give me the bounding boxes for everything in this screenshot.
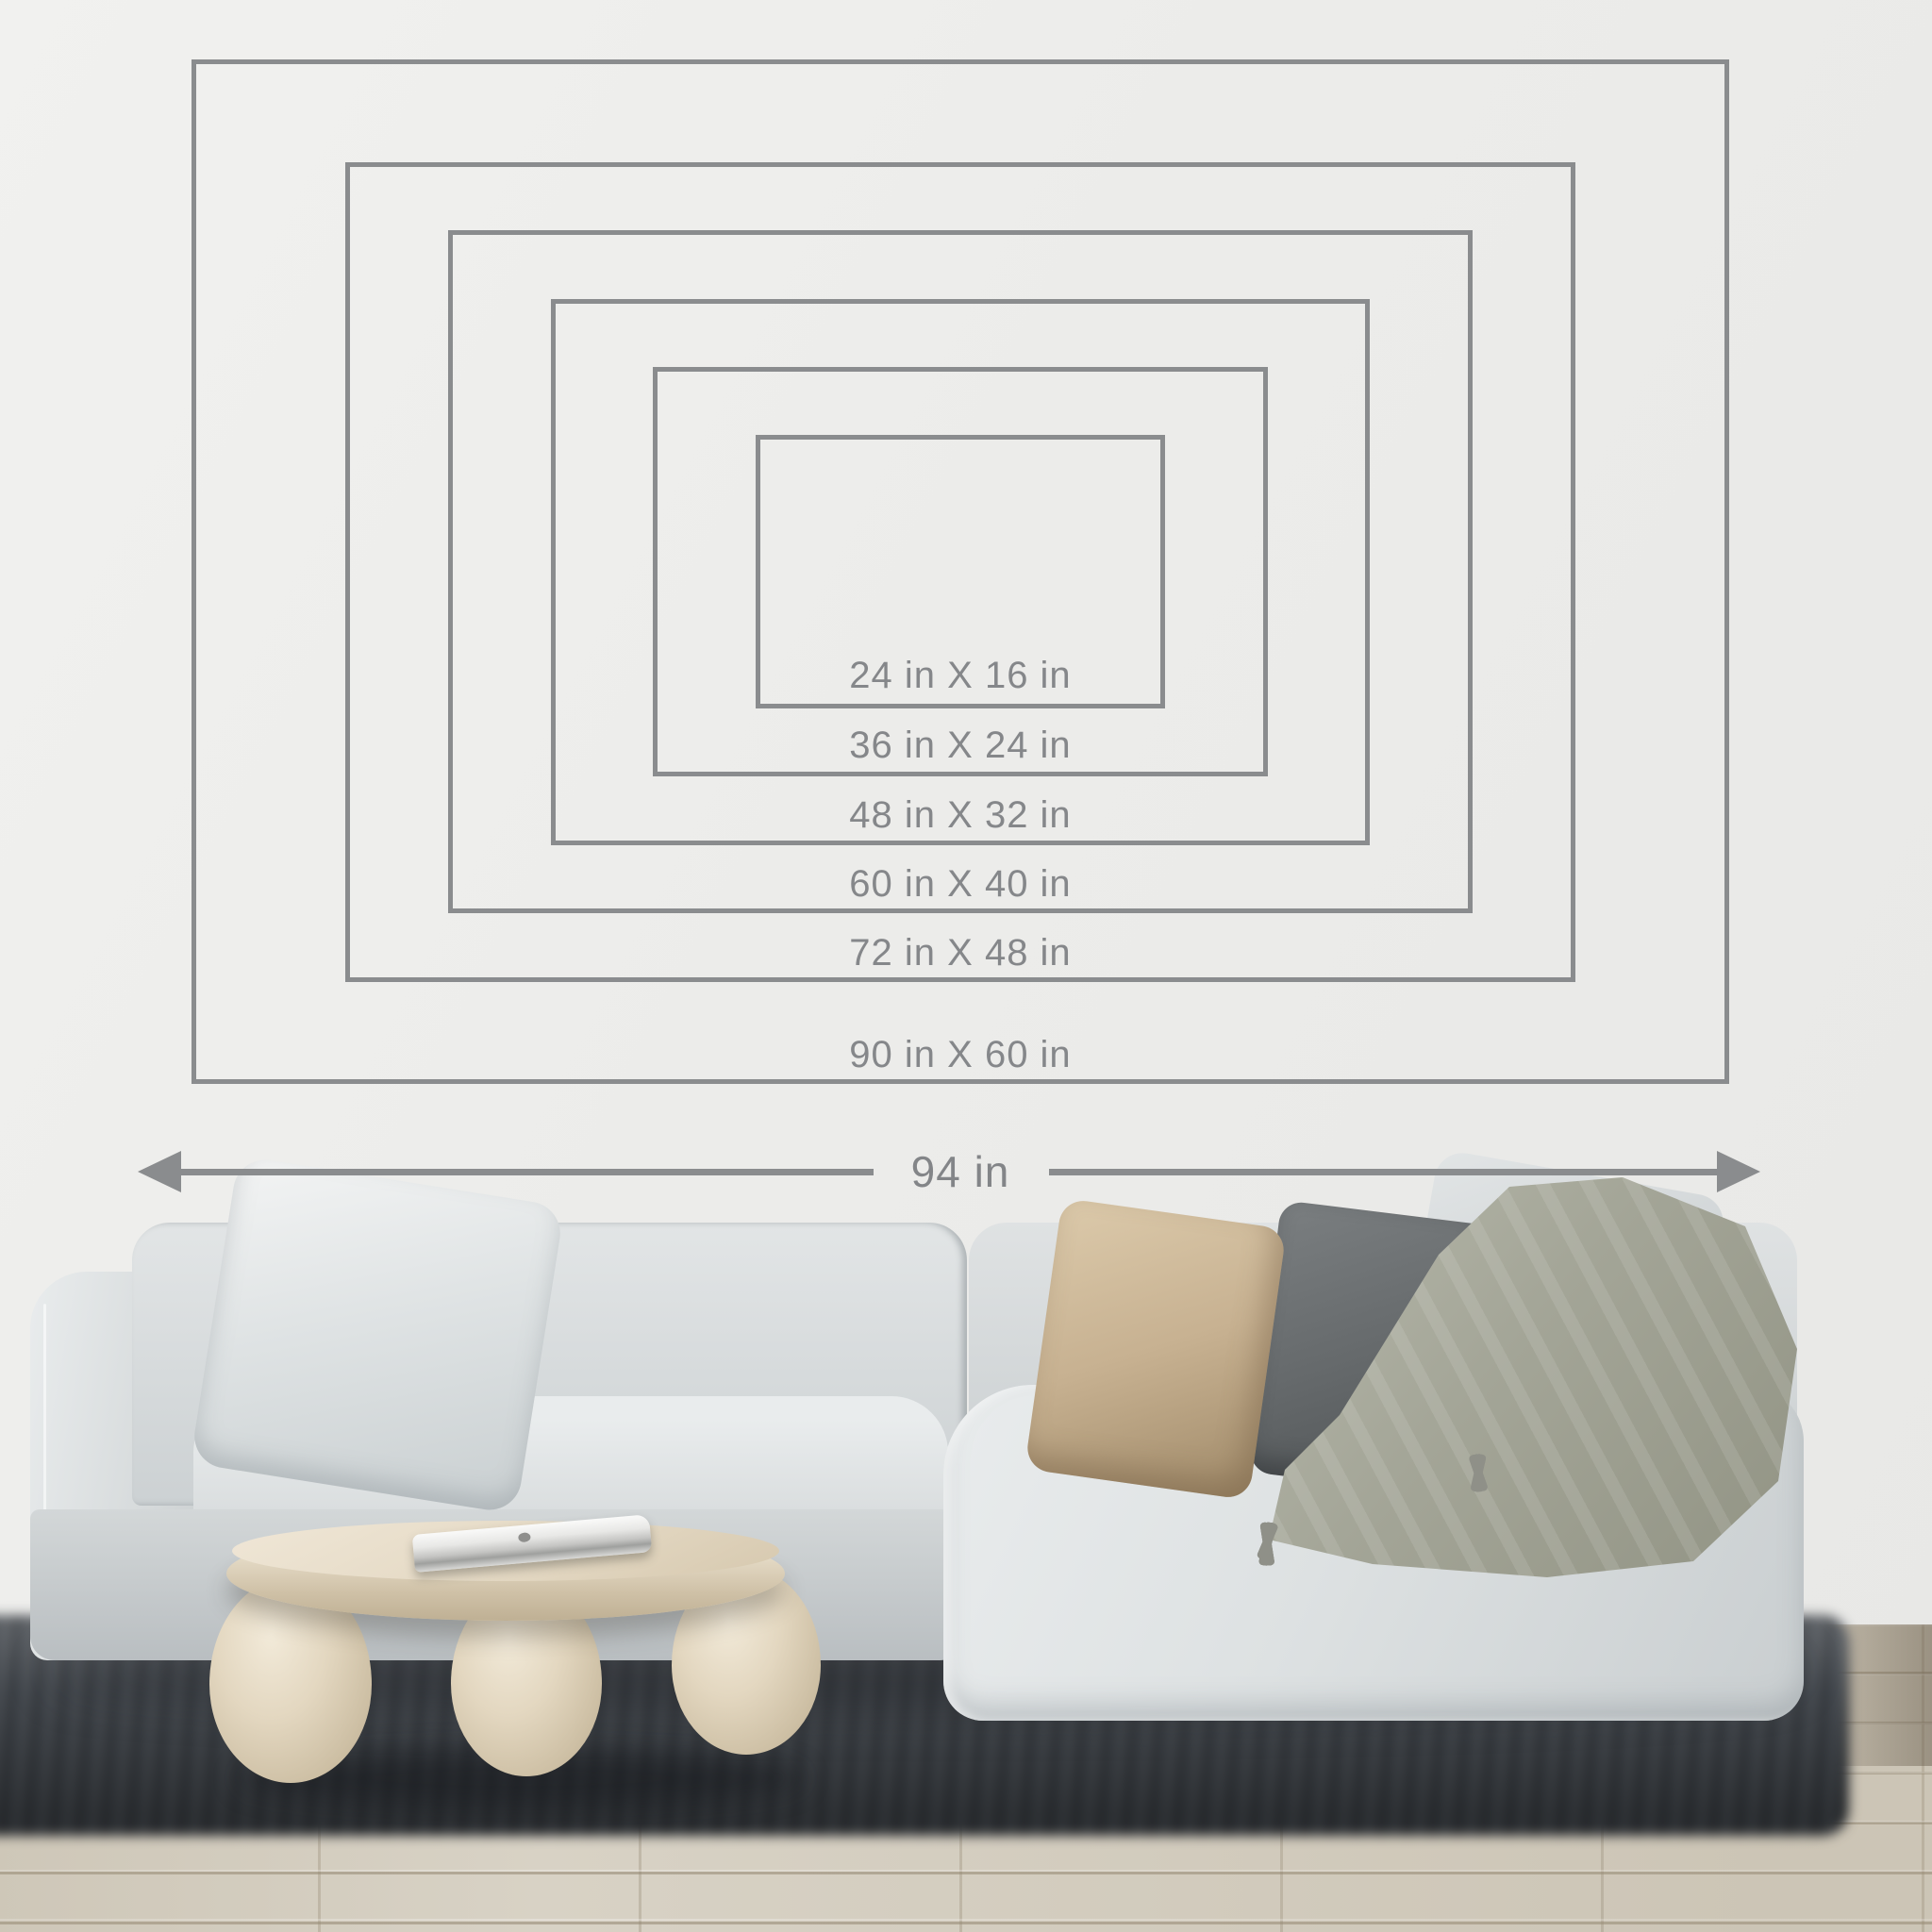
size-label-90x60: 90 in X 60 in bbox=[489, 1032, 1432, 1077]
size-label-24x16: 24 in X 16 in bbox=[489, 653, 1432, 698]
wall-art-size-chart-scene: 24 in X 16 in 36 in X 24 in 48 in X 32 i… bbox=[0, 0, 1932, 1932]
size-label-72x48: 72 in X 48 in bbox=[489, 930, 1432, 975]
size-label-60x40: 60 in X 40 in bbox=[489, 861, 1432, 907]
arrowhead-right-icon bbox=[1717, 1151, 1760, 1192]
arrowhead-left-icon bbox=[138, 1151, 181, 1192]
pillow-white-left bbox=[190, 1156, 564, 1515]
size-label-36x24: 36 in X 24 in bbox=[489, 723, 1432, 768]
size-label-48x32: 48 in X 32 in bbox=[489, 792, 1432, 838]
width-arrow-label: 94 in bbox=[489, 1145, 1432, 1198]
laptop-logo-icon bbox=[518, 1532, 531, 1542]
pillow-beige bbox=[1024, 1198, 1287, 1501]
